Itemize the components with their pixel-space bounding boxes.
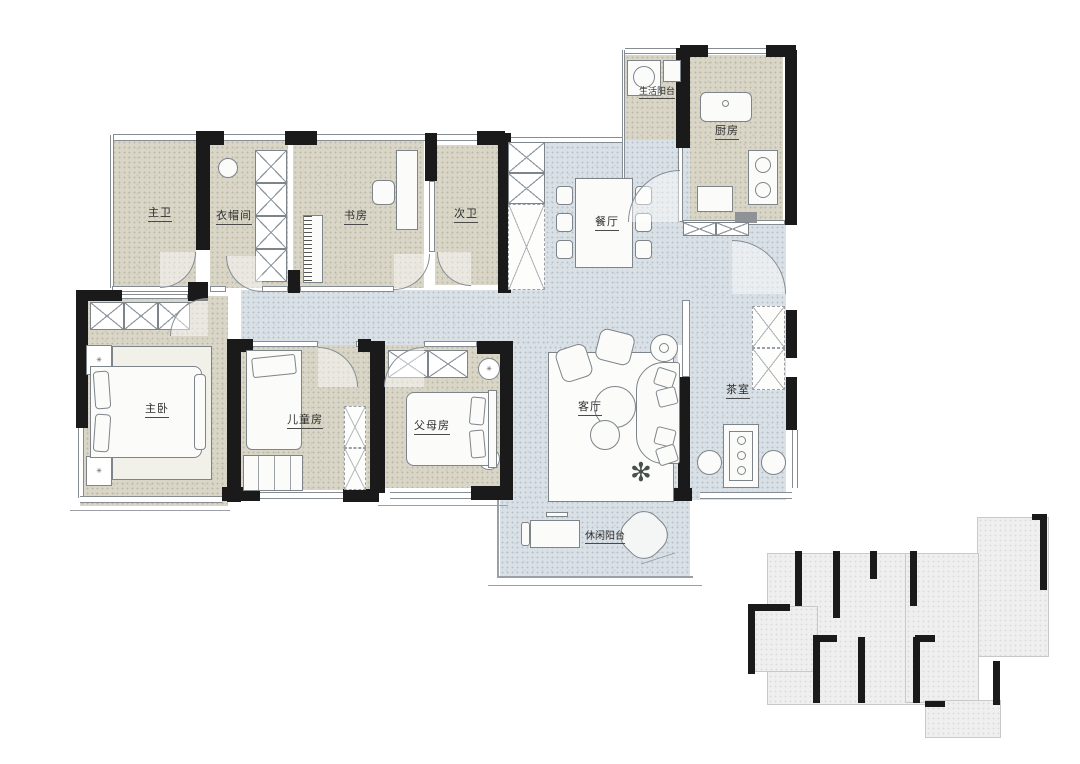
room-label-tea-room: 茶室 [726,381,750,399]
mini-wall [870,551,877,579]
mini-wall [795,551,802,606]
dining-chair [556,240,573,259]
wall-segment [370,341,385,493]
plant: ✻ [630,460,652,486]
mini-wall [833,551,840,618]
room-label-parents-room: 父母房 [414,417,450,435]
partition [112,286,196,292]
treadmill-bar [546,512,568,517]
wall-segment [425,133,437,181]
treadmill [530,520,580,548]
partition [429,181,435,252]
child-desk [243,455,303,491]
wall-segment [500,341,513,493]
corridor-floor [241,290,545,345]
treadmill-seat [521,522,530,546]
room-label-children-room: 儿童房 [287,411,323,429]
closet-cell [255,183,287,216]
window [258,492,343,499]
sill-line [378,505,508,506]
mini-wall [858,637,865,703]
pillow [469,429,486,458]
faucet [722,100,729,107]
wall-segment [227,339,241,502]
floor-plan: ✳ ✳ ✳ ✳ ✻ 生活阳台 厨房 主卫 衣帽间 书房 [0,0,1080,764]
balcony-railing [488,585,702,586]
desk-line [258,456,259,490]
floor-lamp-center [659,343,669,353]
mini-wall [1032,514,1047,520]
desk-line [274,456,275,490]
child-wardrobe [344,448,366,490]
wall-segment [471,486,513,500]
tea-stove [737,466,746,475]
mini-wall [748,604,755,674]
mini-wall [915,635,935,642]
kitchen-sink [700,92,752,122]
room-label-study: 书房 [344,207,368,225]
coffee-table [590,420,620,450]
mini-wall [913,637,920,703]
dining-chair [635,240,652,259]
pillow [469,396,486,425]
pillow [93,413,112,452]
clothes-rod-symbol [218,158,238,178]
bed-bench [194,374,206,450]
window [80,496,222,503]
window [113,134,196,141]
piano [303,215,323,283]
wall-segment [358,339,371,352]
storage-cabinet [508,204,545,290]
room-label-living-room: 客厅 [578,398,602,416]
hall-cabinet [752,306,785,348]
closet-cell [255,150,287,183]
partition [300,286,394,292]
partition [120,294,188,299]
wall-segment [288,270,300,293]
partition [682,300,690,377]
burner [755,182,771,198]
room-label-cloakroom: 衣帽间 [216,207,252,225]
pillow [93,370,112,409]
partition [210,286,226,292]
window [224,134,285,141]
window [110,135,114,288]
stool [761,450,786,475]
desk [396,150,418,230]
wardrobe-cell [90,302,124,330]
storage-cell [508,142,545,173]
fan-symbol: ✳ [478,358,500,380]
room-label-dining: 餐厅 [595,213,619,231]
mini-floor [748,606,818,672]
wall-segment [196,140,210,250]
window [700,492,792,499]
wall-segment [343,489,379,502]
wardrobe-cell [124,302,158,330]
storage-cell [508,173,545,204]
wardrobe-cell [428,350,468,378]
mini-floor [977,517,1049,657]
shoe-cabinet [716,222,749,236]
balcony-shelf [663,60,681,82]
mini-wall [993,661,1000,705]
mini-wall [925,701,945,707]
window [390,492,477,499]
mini-wall [813,635,820,703]
door-arc [394,254,430,290]
mini-wall [910,551,917,606]
room-label-master-bath: 主卫 [148,204,172,222]
wall-segment [786,377,797,430]
burner [755,157,771,173]
window [792,430,798,488]
headboard [488,390,497,468]
room-label-leisure-balcony: 休闲阳台 [585,527,625,544]
window [78,428,84,498]
window [317,134,477,141]
dining-chair [556,213,573,232]
closet-cell [255,216,287,249]
wall-segment [786,310,797,358]
room-label-master-bedroom: 主卧 [145,400,169,418]
tea-stove [737,451,746,460]
stool [697,450,722,475]
balcony-railing [497,500,499,578]
sill-line [70,510,230,511]
room-label-service-balcony: 生活阳台 [639,84,675,99]
wall-segment [76,290,122,301]
partition [262,286,288,292]
child-wardrobe [344,406,366,448]
shoe-cabinet [683,222,716,236]
kitchen-island [697,186,733,212]
wall-segment [785,50,797,225]
window [625,48,683,54]
mini-wall [1040,516,1047,590]
wall-segment [285,131,317,145]
desk-line [290,456,291,490]
hall-cabinet [752,348,785,390]
desk-chair [372,180,395,205]
tea-stove [737,436,746,445]
room-label-kitchen: 厨房 [715,122,739,140]
nightstand: ✳ [86,456,112,486]
balcony-railing [497,576,693,578]
dining-chair [556,186,573,205]
room-label-second-bath: 次卫 [454,205,478,223]
partition [424,341,477,347]
